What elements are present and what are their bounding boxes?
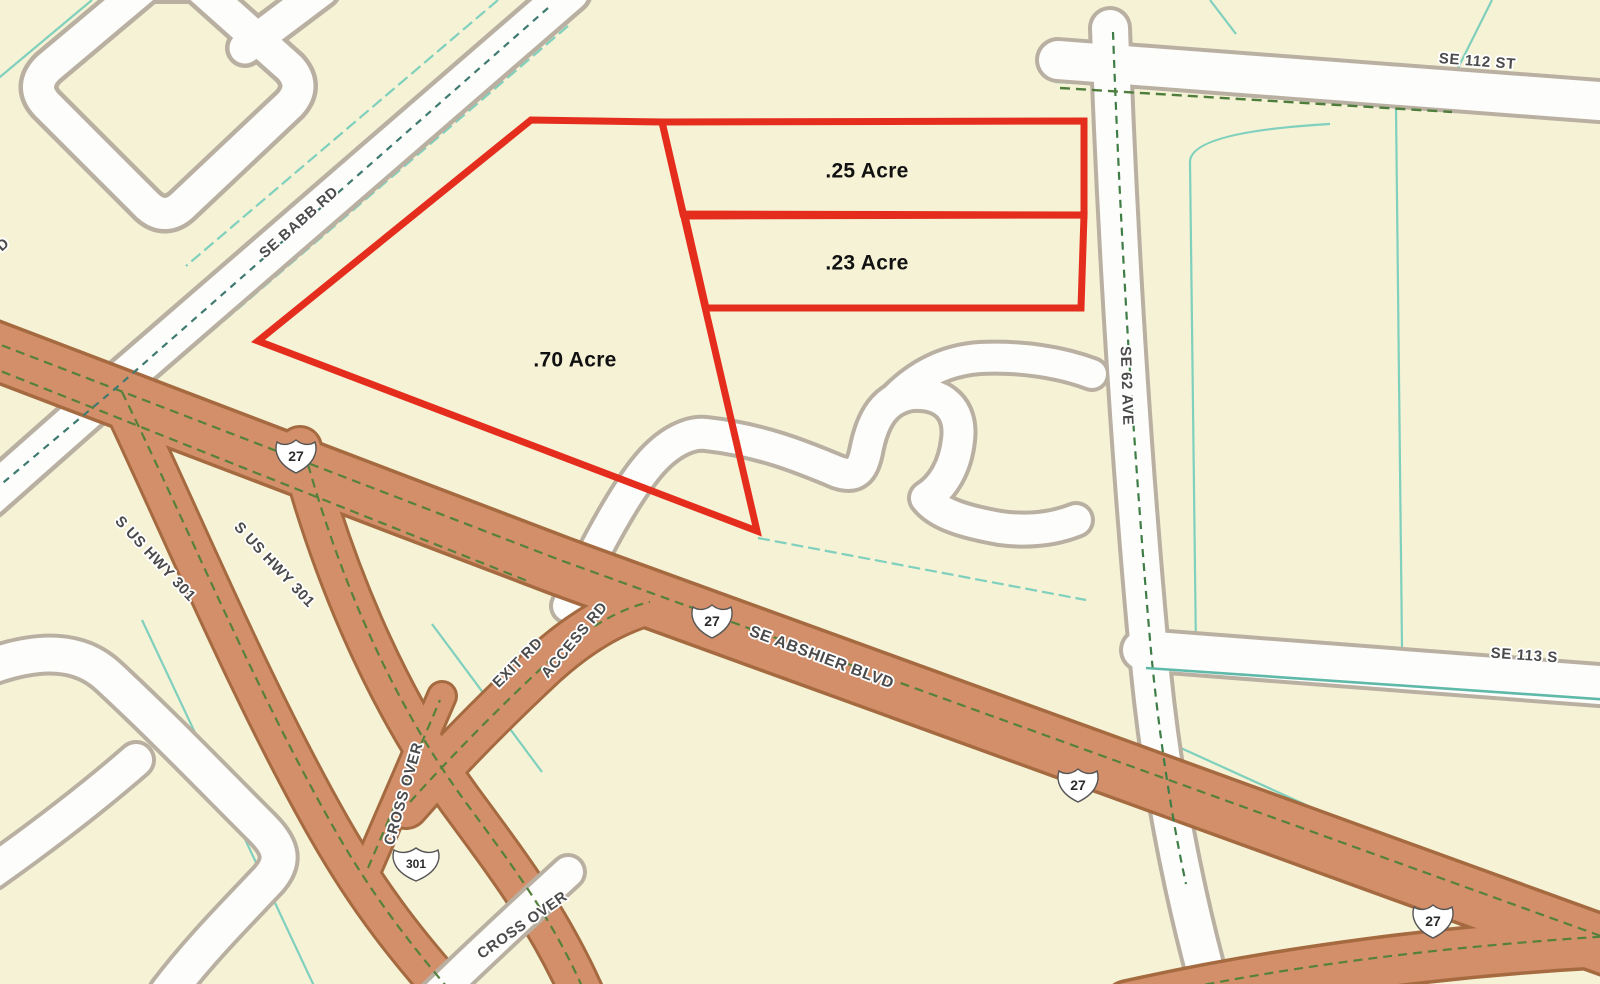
label-se-62-ave: SE 62 AVE (1117, 346, 1137, 426)
shield-route-number: 27 (1070, 777, 1086, 793)
shield-route-number: 301 (406, 857, 426, 871)
shield-route-number: 27 (1425, 913, 1441, 929)
shield-route-number: 27 (704, 613, 720, 629)
parcel-label-70-acre: .70 Acre (533, 349, 616, 372)
parcel-label-25-acre: .25 Acre (825, 160, 908, 183)
shield-route-number: 27 (288, 448, 304, 464)
map-canvas[interactable]: .70 Acre .25 Acre .23 Acre SE BABB RD SE… (0, 0, 1600, 984)
parcel-map[interactable]: .70 Acre .25 Acre .23 Acre SE BABB RD SE… (0, 0, 1600, 984)
parcel-label-23-acre: .23 Acre (825, 252, 908, 275)
